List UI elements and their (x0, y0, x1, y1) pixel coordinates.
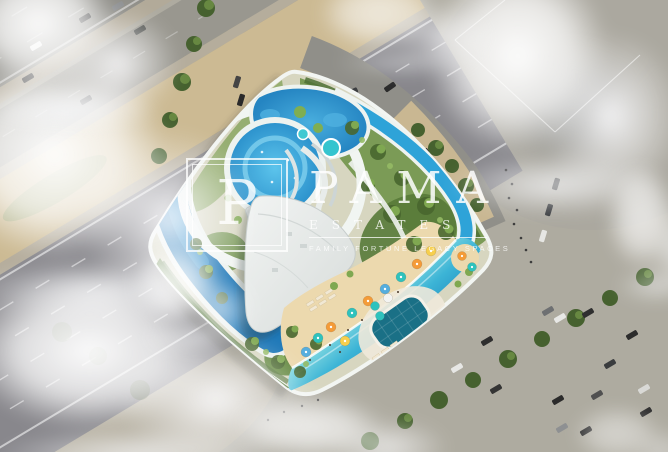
aerial-resort-scene: P PAMA ESTATES FAMILY FORTUNE LEGACY SPA… (0, 0, 668, 452)
survey-lines (0, 0, 668, 452)
